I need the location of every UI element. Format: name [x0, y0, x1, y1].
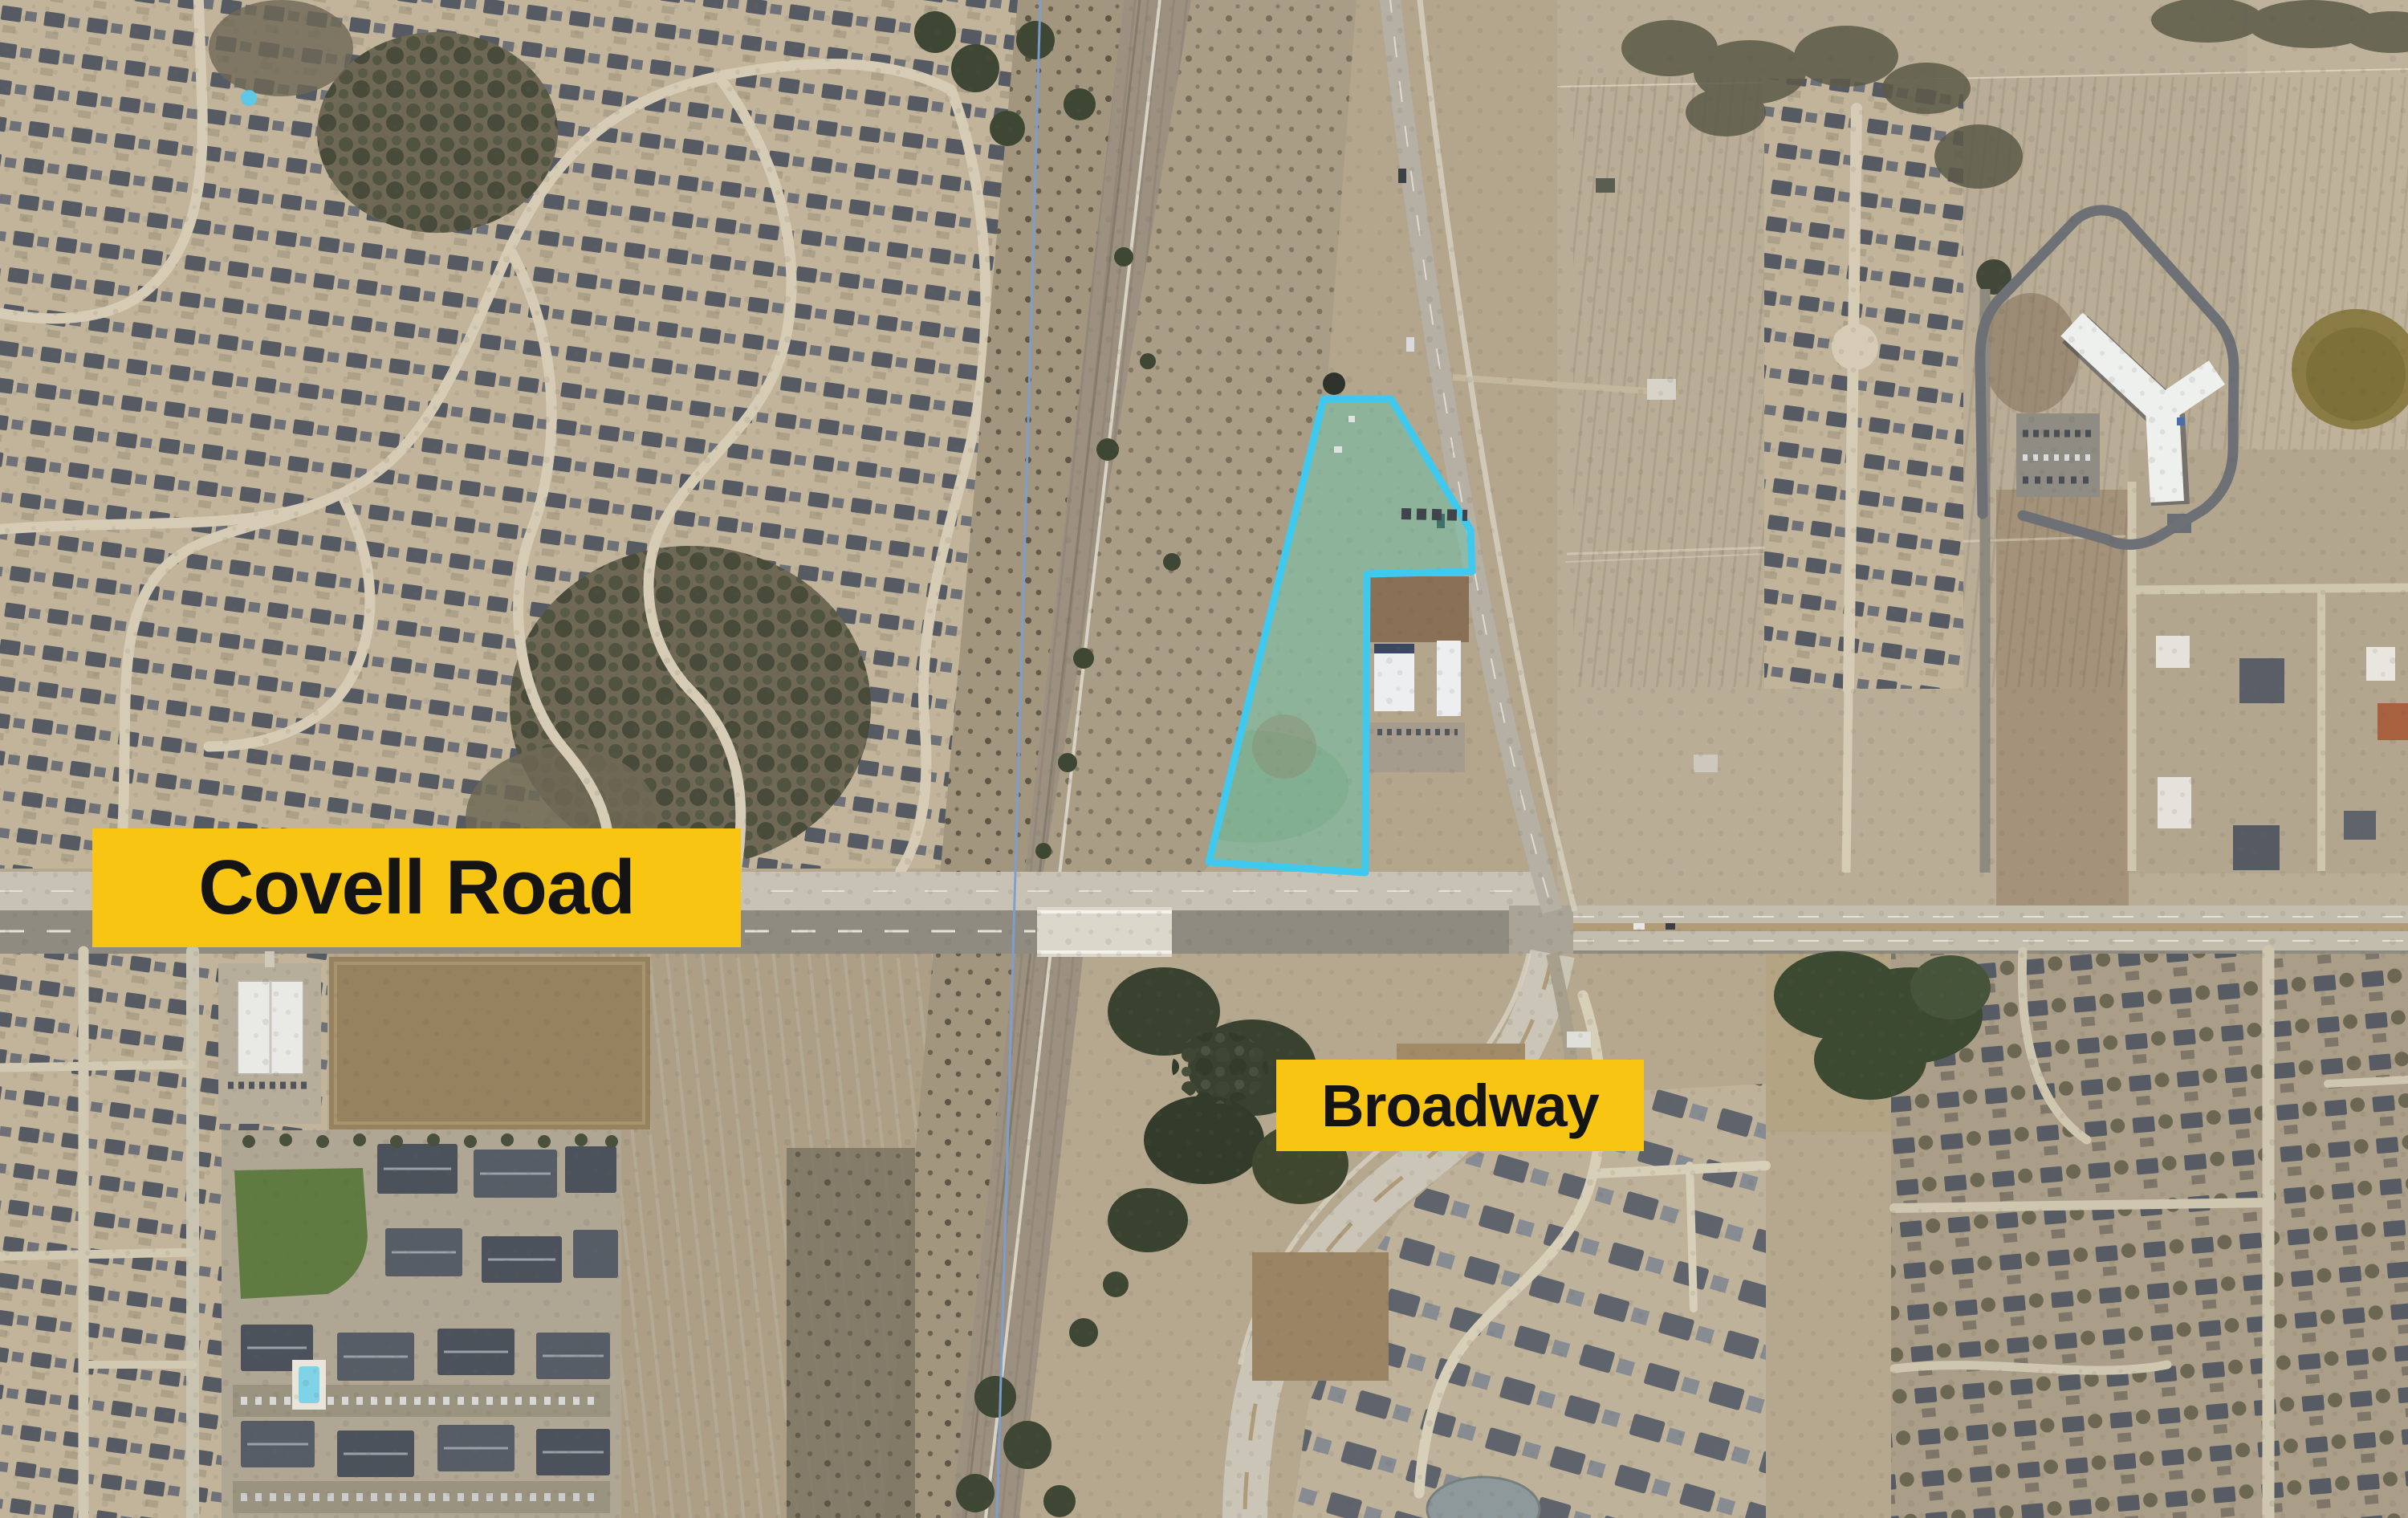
road-label-covell-text: Covell Road: [198, 844, 635, 932]
photo-noise-overlay: [0, 0, 2408, 1518]
aerial-map-stage: Covell Road Broadway: [0, 0, 2408, 1518]
road-label-covell: Covell Road: [92, 828, 741, 947]
road-label-broadway: Broadway: [1276, 1060, 1644, 1151]
road-label-broadway-text: Broadway: [1321, 1072, 1599, 1140]
aerial-map: [0, 0, 2408, 1518]
